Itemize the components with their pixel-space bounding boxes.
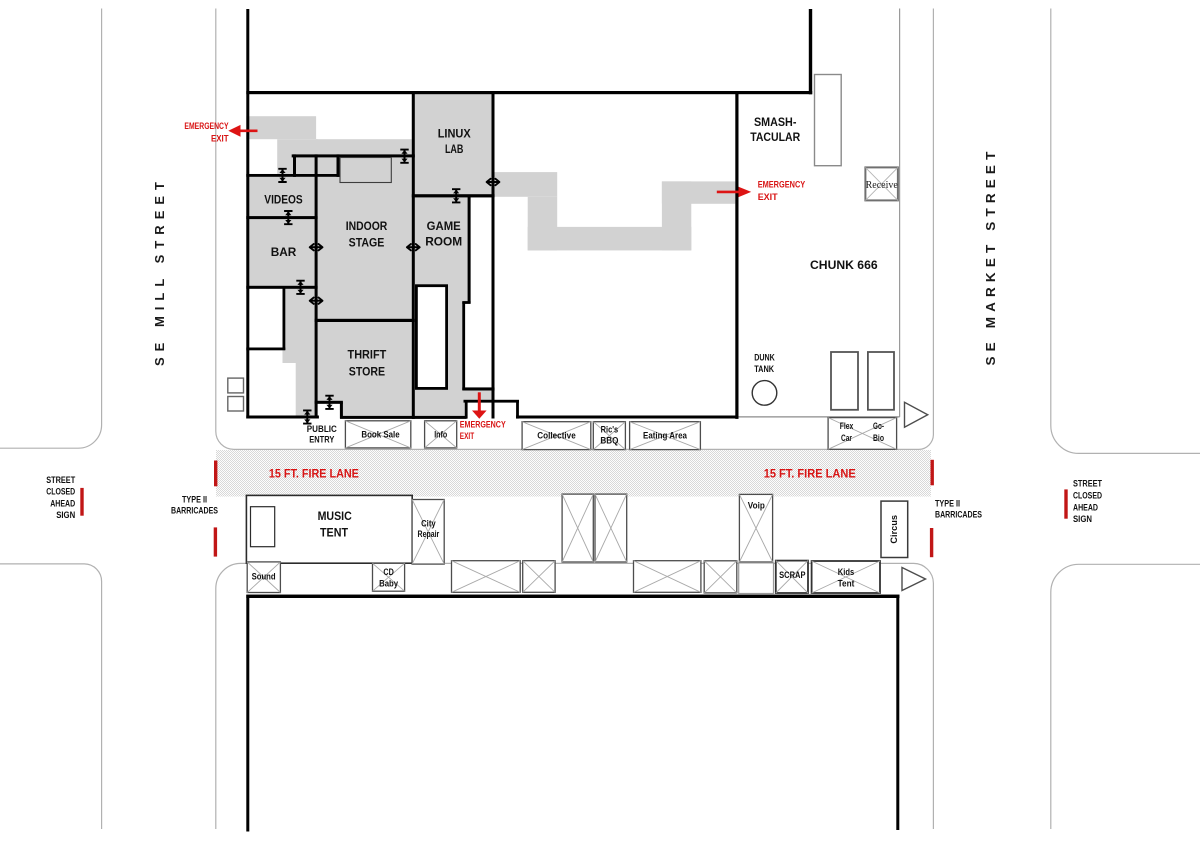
svg-text:CLOSED: CLOSED (1073, 490, 1102, 500)
svg-text:Kids: Kids (838, 567, 854, 577)
svg-text:SIGN: SIGN (1073, 514, 1092, 524)
svg-text:Tent: Tent (838, 578, 855, 588)
svg-text:EMERGENCY: EMERGENCY (184, 121, 228, 131)
svg-text:ROOM: ROOM (425, 234, 462, 248)
svg-text:Sound: Sound (252, 572, 276, 582)
svg-text:Car: Car (841, 433, 852, 443)
svg-text:LINUX: LINUX (438, 126, 471, 140)
svg-text:Repair: Repair (418, 529, 440, 539)
svg-text:Circus: Circus (889, 515, 899, 544)
svg-text:CHUNK 666: CHUNK 666 (810, 258, 878, 272)
svg-text:15 FT. FIRE LANE: 15 FT. FIRE LANE (269, 467, 359, 481)
svg-text:Go-: Go- (873, 421, 884, 431)
svg-text:SE MILL STREET: SE MILL STREET (152, 176, 167, 366)
svg-text:Eating Area: Eating Area (643, 431, 688, 441)
svg-text:City: City (421, 518, 436, 528)
svg-text:CD: CD (383, 567, 394, 577)
svg-text:Voip: Voip (748, 500, 765, 510)
svg-text:SCRAP: SCRAP (779, 570, 806, 581)
svg-text:Baby: Baby (379, 579, 398, 589)
svg-text:Receive: Receive (866, 180, 899, 191)
svg-text:CLOSED: CLOSED (46, 487, 75, 497)
svg-text:TYPE II: TYPE II (935, 499, 960, 509)
svg-text:EMERGENCY: EMERGENCY (460, 420, 506, 430)
svg-text:INDOOR: INDOOR (346, 219, 388, 233)
svg-text:BARRICADES: BARRICADES (171, 506, 218, 516)
svg-text:EXIT: EXIT (460, 431, 475, 441)
svg-text:STAGE: STAGE (349, 235, 385, 249)
svg-text:EXIT: EXIT (211, 133, 229, 143)
svg-text:Flex: Flex (840, 421, 854, 431)
svg-text:Book Sale: Book Sale (361, 429, 399, 439)
svg-text:Info: Info (434, 429, 447, 439)
svg-text:VIDEOS: VIDEOS (264, 193, 302, 207)
svg-text:SMASH-: SMASH- (754, 115, 797, 129)
svg-text:TANK: TANK (754, 364, 774, 375)
svg-text:TACULAR: TACULAR (750, 130, 800, 144)
svg-text:DUNK: DUNK (754, 353, 775, 364)
svg-text:TYPE II: TYPE II (182, 494, 207, 504)
svg-text:GAME: GAME (427, 219, 461, 233)
svg-text:LAB: LAB (445, 142, 464, 156)
svg-text:STREET: STREET (46, 475, 75, 485)
svg-text:EXIT: EXIT (758, 192, 778, 202)
svg-text:THRIFT: THRIFT (348, 347, 387, 361)
svg-text:PUBLIC: PUBLIC (307, 424, 337, 434)
svg-text:STREET: STREET (1073, 479, 1102, 489)
svg-text:15 FT. FIRE LANE: 15 FT. FIRE LANE (764, 467, 856, 481)
svg-text:AHEAD: AHEAD (1073, 502, 1098, 512)
svg-text:MUSIC: MUSIC (318, 509, 352, 523)
svg-text:SE MARKET STREET: SE MARKET STREET (983, 147, 998, 366)
svg-text:Collective: Collective (537, 431, 576, 441)
svg-text:BAR: BAR (271, 245, 297, 259)
svg-text:BBQ: BBQ (600, 436, 618, 446)
svg-text:STORE: STORE (349, 364, 385, 378)
svg-text:AHEAD: AHEAD (50, 498, 75, 508)
svg-text:Ric's: Ric's (601, 425, 619, 435)
svg-text:EMERGENCY: EMERGENCY (758, 180, 806, 190)
svg-text:Bio: Bio (873, 433, 884, 443)
svg-text:TENT: TENT (320, 525, 349, 539)
svg-text:SIGN: SIGN (56, 510, 75, 520)
svg-text:BARRICADES: BARRICADES (935, 509, 982, 519)
svg-text:ENTRY: ENTRY (309, 434, 334, 444)
